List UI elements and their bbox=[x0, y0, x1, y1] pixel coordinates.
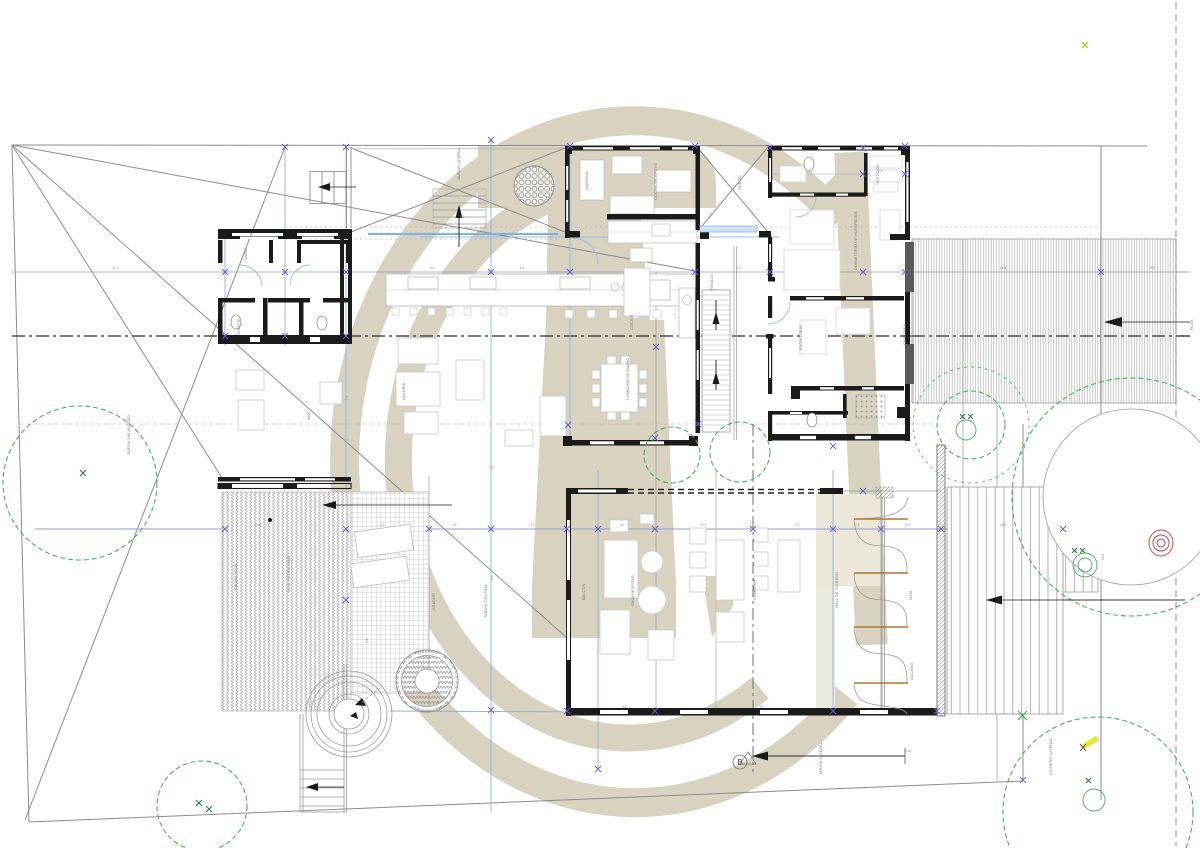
svg-text:6.3: 6.3 bbox=[905, 523, 910, 527]
svg-text:6.2: 6.2 bbox=[520, 266, 525, 270]
svg-text:8.5: 8.5 bbox=[490, 575, 494, 580]
svg-text:JARDIN DELANTERO: JARDIN DELANTERO bbox=[126, 415, 131, 455]
svg-text:GYM: GYM bbox=[908, 591, 913, 600]
svg-text:ALACENA: ALACENA bbox=[584, 171, 589, 190]
svg-text:SALA DE ESTAR: SALA DE ESTAR bbox=[630, 575, 635, 606]
svg-text:16.1: 16.1 bbox=[1000, 523, 1006, 527]
svg-text:SAUNA: SAUNA bbox=[244, 247, 248, 260]
svg-text:2.8: 2.8 bbox=[452, 523, 457, 527]
svg-text:CHIMENEA: CHIMENEA bbox=[902, 324, 907, 345]
svg-text:2.3: 2.3 bbox=[736, 266, 741, 270]
svg-text:JARDIN CENTRAL: JARDIN CENTRAL bbox=[483, 583, 488, 618]
svg-text:INGRESO LATERAL: INGRESO LATERAL bbox=[1048, 737, 1053, 775]
svg-text:DORMITORIO DE HUESPEDES: DORMITORIO DE HUESPEDES bbox=[853, 211, 858, 270]
svg-text:JARDIN LATERAL: JARDIN LATERAL bbox=[818, 741, 823, 775]
svg-text:2.2: 2.2 bbox=[855, 523, 860, 527]
svg-text:10.1: 10.1 bbox=[700, 523, 706, 527]
svg-text:4.2: 4.2 bbox=[380, 523, 385, 527]
svg-text:10.6: 10.6 bbox=[255, 523, 261, 527]
svg-text:HUECO: HUECO bbox=[737, 176, 742, 190]
svg-text:TOILETTE: TOILETTE bbox=[237, 318, 241, 335]
svg-text:5.8: 5.8 bbox=[622, 705, 627, 709]
svg-text:4.1: 4.1 bbox=[490, 465, 494, 470]
svg-text:6.1: 6.1 bbox=[620, 523, 625, 527]
svg-text:ACCESO: ACCESO bbox=[909, 663, 914, 680]
svg-text:3.3: 3.3 bbox=[460, 215, 465, 219]
svg-text:ESCRITORIO: ESCRITORIO bbox=[798, 325, 803, 350]
svg-text:4.15: 4.15 bbox=[905, 749, 911, 753]
svg-text:COMEDOR: COMEDOR bbox=[752, 579, 757, 600]
svg-text:1.2: 1.2 bbox=[365, 638, 369, 643]
svg-text:9.2: 9.2 bbox=[760, 705, 765, 709]
svg-text:3.9: 3.9 bbox=[530, 523, 535, 527]
svg-text:COMEDOR DE DIARIO: COMEDOR DE DIARIO bbox=[625, 358, 630, 400]
svg-text:BALCON: BALCON bbox=[581, 583, 586, 600]
svg-text:ASADOR: ASADOR bbox=[431, 593, 436, 610]
svg-text:12.1: 12.1 bbox=[112, 266, 118, 270]
svg-text:LAJA PIEDRA MAJE: LAJA PIEDRA MAJE bbox=[286, 555, 291, 592]
svg-text:PASILLO: PASILLO bbox=[709, 274, 714, 290]
svg-text:GALERIA: GALERIA bbox=[401, 382, 406, 400]
svg-text:BAR: BAR bbox=[306, 412, 311, 420]
svg-text:PIEDRA MAJE: PIEDRA MAJE bbox=[233, 563, 238, 590]
svg-text:COCINA: COCINA bbox=[629, 314, 634, 330]
svg-text:VESTIDOR: VESTIDOR bbox=[875, 164, 880, 185]
svg-text:12.6: 12.6 bbox=[1101, 554, 1105, 560]
svg-text:7.4: 7.4 bbox=[345, 395, 349, 400]
svg-text:COCINA DE APOYO: COCINA DE APOYO bbox=[653, 163, 658, 200]
svg-text:HALL DE INGRESO: HALL DE INGRESO bbox=[834, 572, 839, 608]
svg-text:B: B bbox=[737, 758, 742, 767]
svg-text:3.1: 3.1 bbox=[430, 266, 435, 270]
svg-text:RUTA: RUTA bbox=[1189, 319, 1194, 330]
svg-text:3.5: 3.5 bbox=[1150, 266, 1155, 270]
svg-text:18.4: 18.4 bbox=[1000, 266, 1006, 270]
svg-text:5.3: 5.3 bbox=[795, 523, 800, 527]
svg-text:2.5: 2.5 bbox=[878, 169, 883, 173]
svg-text:JARDIN LATERAL: JARDIN LATERAL bbox=[456, 146, 461, 180]
